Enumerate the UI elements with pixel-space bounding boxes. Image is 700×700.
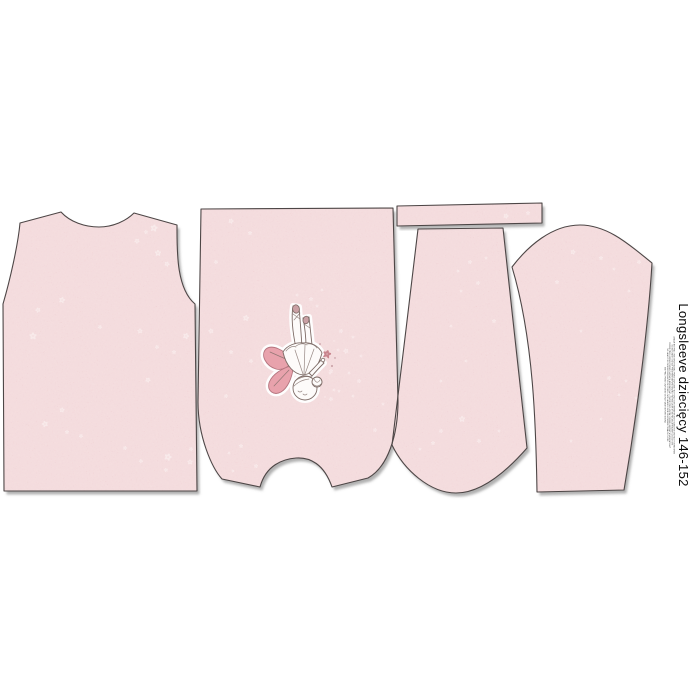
care-line: DO NOT WASH / DO NOT PRESHRINK BEFORE SE… — [671, 336, 673, 454]
pattern-title: Longsleeve dziecięcy 146-152 — [676, 127, 691, 663]
star-print — [286, 475, 289, 478]
panel-canvas — [0, 0, 700, 700]
care-instructions: UWAGA! NIE PRAĆ I NIE DEKATYZOWAĆ PRZED … — [663, 127, 675, 663]
fabric-texture — [0, 195, 700, 505]
fabric-panel-preview: Longsleeve dziecięcy 146-152 UWAGA! NIE … — [0, 0, 700, 700]
care-line: POZOR! PŘED UŠITÍM VÝROBKU NEPRAT A NEDE… — [668, 336, 670, 454]
care-line: UWAGA! NIE PRAĆ I NIE DEKATYZOWAĆ PRZED … — [673, 336, 675, 454]
selvedge-label: Longsleeve dziecięcy 146-152 UWAGA! NIE … — [663, 127, 691, 663]
star-print — [303, 468, 306, 471]
star-print — [646, 337, 649, 340]
care-line: NO LAVAR Y NO DESENCOGER ANTES DE COSER … — [666, 336, 668, 454]
